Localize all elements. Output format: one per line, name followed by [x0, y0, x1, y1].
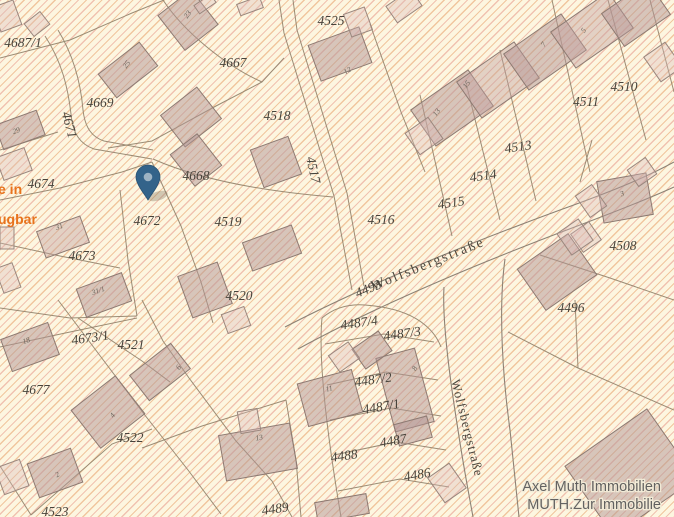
- building: [237, 408, 261, 433]
- parcel-label: 4508: [610, 238, 637, 253]
- overlay-text-line2: ugbar: [0, 211, 37, 227]
- building: [24, 12, 50, 37]
- watermark-line2: MUTH.Zur Immobilie: [527, 497, 661, 513]
- parcel-label: 4669: [87, 95, 114, 110]
- parcel-label: 4674: [28, 176, 55, 191]
- building: [0, 110, 45, 149]
- parcel-label: 4687/1: [4, 35, 42, 50]
- parcel-label: 4668: [183, 168, 210, 183]
- parcel-boundary-line: [0, 308, 137, 318]
- street-label: Wolfsbergstraße: [448, 378, 487, 478]
- parcel-label: 4493: [353, 276, 384, 300]
- buildings: [0, 0, 674, 517]
- street-edge-line: [502, 259, 519, 517]
- parcel-boundary-line: [508, 332, 674, 410]
- parcel-label: 4677: [23, 382, 51, 397]
- building: [221, 306, 250, 333]
- parcel-label: 4671: [59, 110, 80, 140]
- parcel-boundary-line: [142, 300, 292, 517]
- parcel-label: 4511: [573, 94, 599, 109]
- overlay-text-line1: e in: [0, 181, 22, 197]
- building: [644, 42, 674, 81]
- building: [98, 42, 157, 98]
- map-pin[interactable]: [136, 165, 169, 203]
- building: [315, 494, 370, 517]
- parcel-label: 4515: [437, 193, 466, 212]
- building: [386, 0, 422, 23]
- parcel-label: 4514: [469, 166, 498, 185]
- building: [0, 227, 14, 249]
- building: [297, 370, 362, 427]
- parcel-label: 4519: [215, 214, 242, 229]
- parcel-label: 4487: [378, 431, 408, 451]
- building: [328, 342, 359, 372]
- parcel-label: 4522: [117, 430, 144, 445]
- building: [1, 322, 60, 371]
- building: [76, 273, 131, 318]
- parcel-label: 4673: [69, 248, 96, 263]
- parcel-label: 4518: [264, 108, 291, 123]
- parcel-label: 4487/4: [339, 312, 378, 332]
- building: [219, 423, 298, 481]
- parcel-label: 4517: [303, 155, 324, 186]
- parcel-label: 4487/3: [382, 323, 421, 343]
- street-label: Wolfsbergstraße: [369, 235, 487, 294]
- parcel-label: 4496: [558, 300, 585, 315]
- pin-hole: [144, 173, 153, 182]
- parcel-label: 4525: [318, 13, 345, 28]
- parcel-label: 4486: [402, 465, 431, 485]
- parcel-label: 4489: [261, 499, 290, 517]
- building: [242, 225, 301, 271]
- building: [0, 459, 29, 494]
- building: [178, 262, 233, 318]
- building: [0, 263, 21, 294]
- building: [0, 0, 22, 32]
- building: [428, 463, 467, 502]
- parcel-label: 4488: [330, 446, 359, 465]
- watermark-line1: Axel Muth Immobilien: [522, 479, 661, 495]
- parcel-label: 4523: [42, 504, 69, 517]
- parcel-label: 4667: [220, 55, 248, 70]
- parcel-label: 4520: [226, 288, 253, 303]
- parcel-label: 4513: [504, 137, 533, 156]
- parcel-label: 4672: [134, 213, 161, 228]
- parcel-label: 4516: [368, 212, 395, 227]
- building: [237, 0, 264, 16]
- parcel-label: 4510: [611, 79, 638, 94]
- building: [308, 27, 372, 81]
- building: [250, 136, 301, 187]
- parcel-label: 4521: [118, 337, 145, 352]
- parcel-boundary-line: [580, 140, 592, 182]
- map-canvas[interactable]: Wolfsbergstraße Wolfsbergstraße 4687/1 4…: [0, 0, 674, 517]
